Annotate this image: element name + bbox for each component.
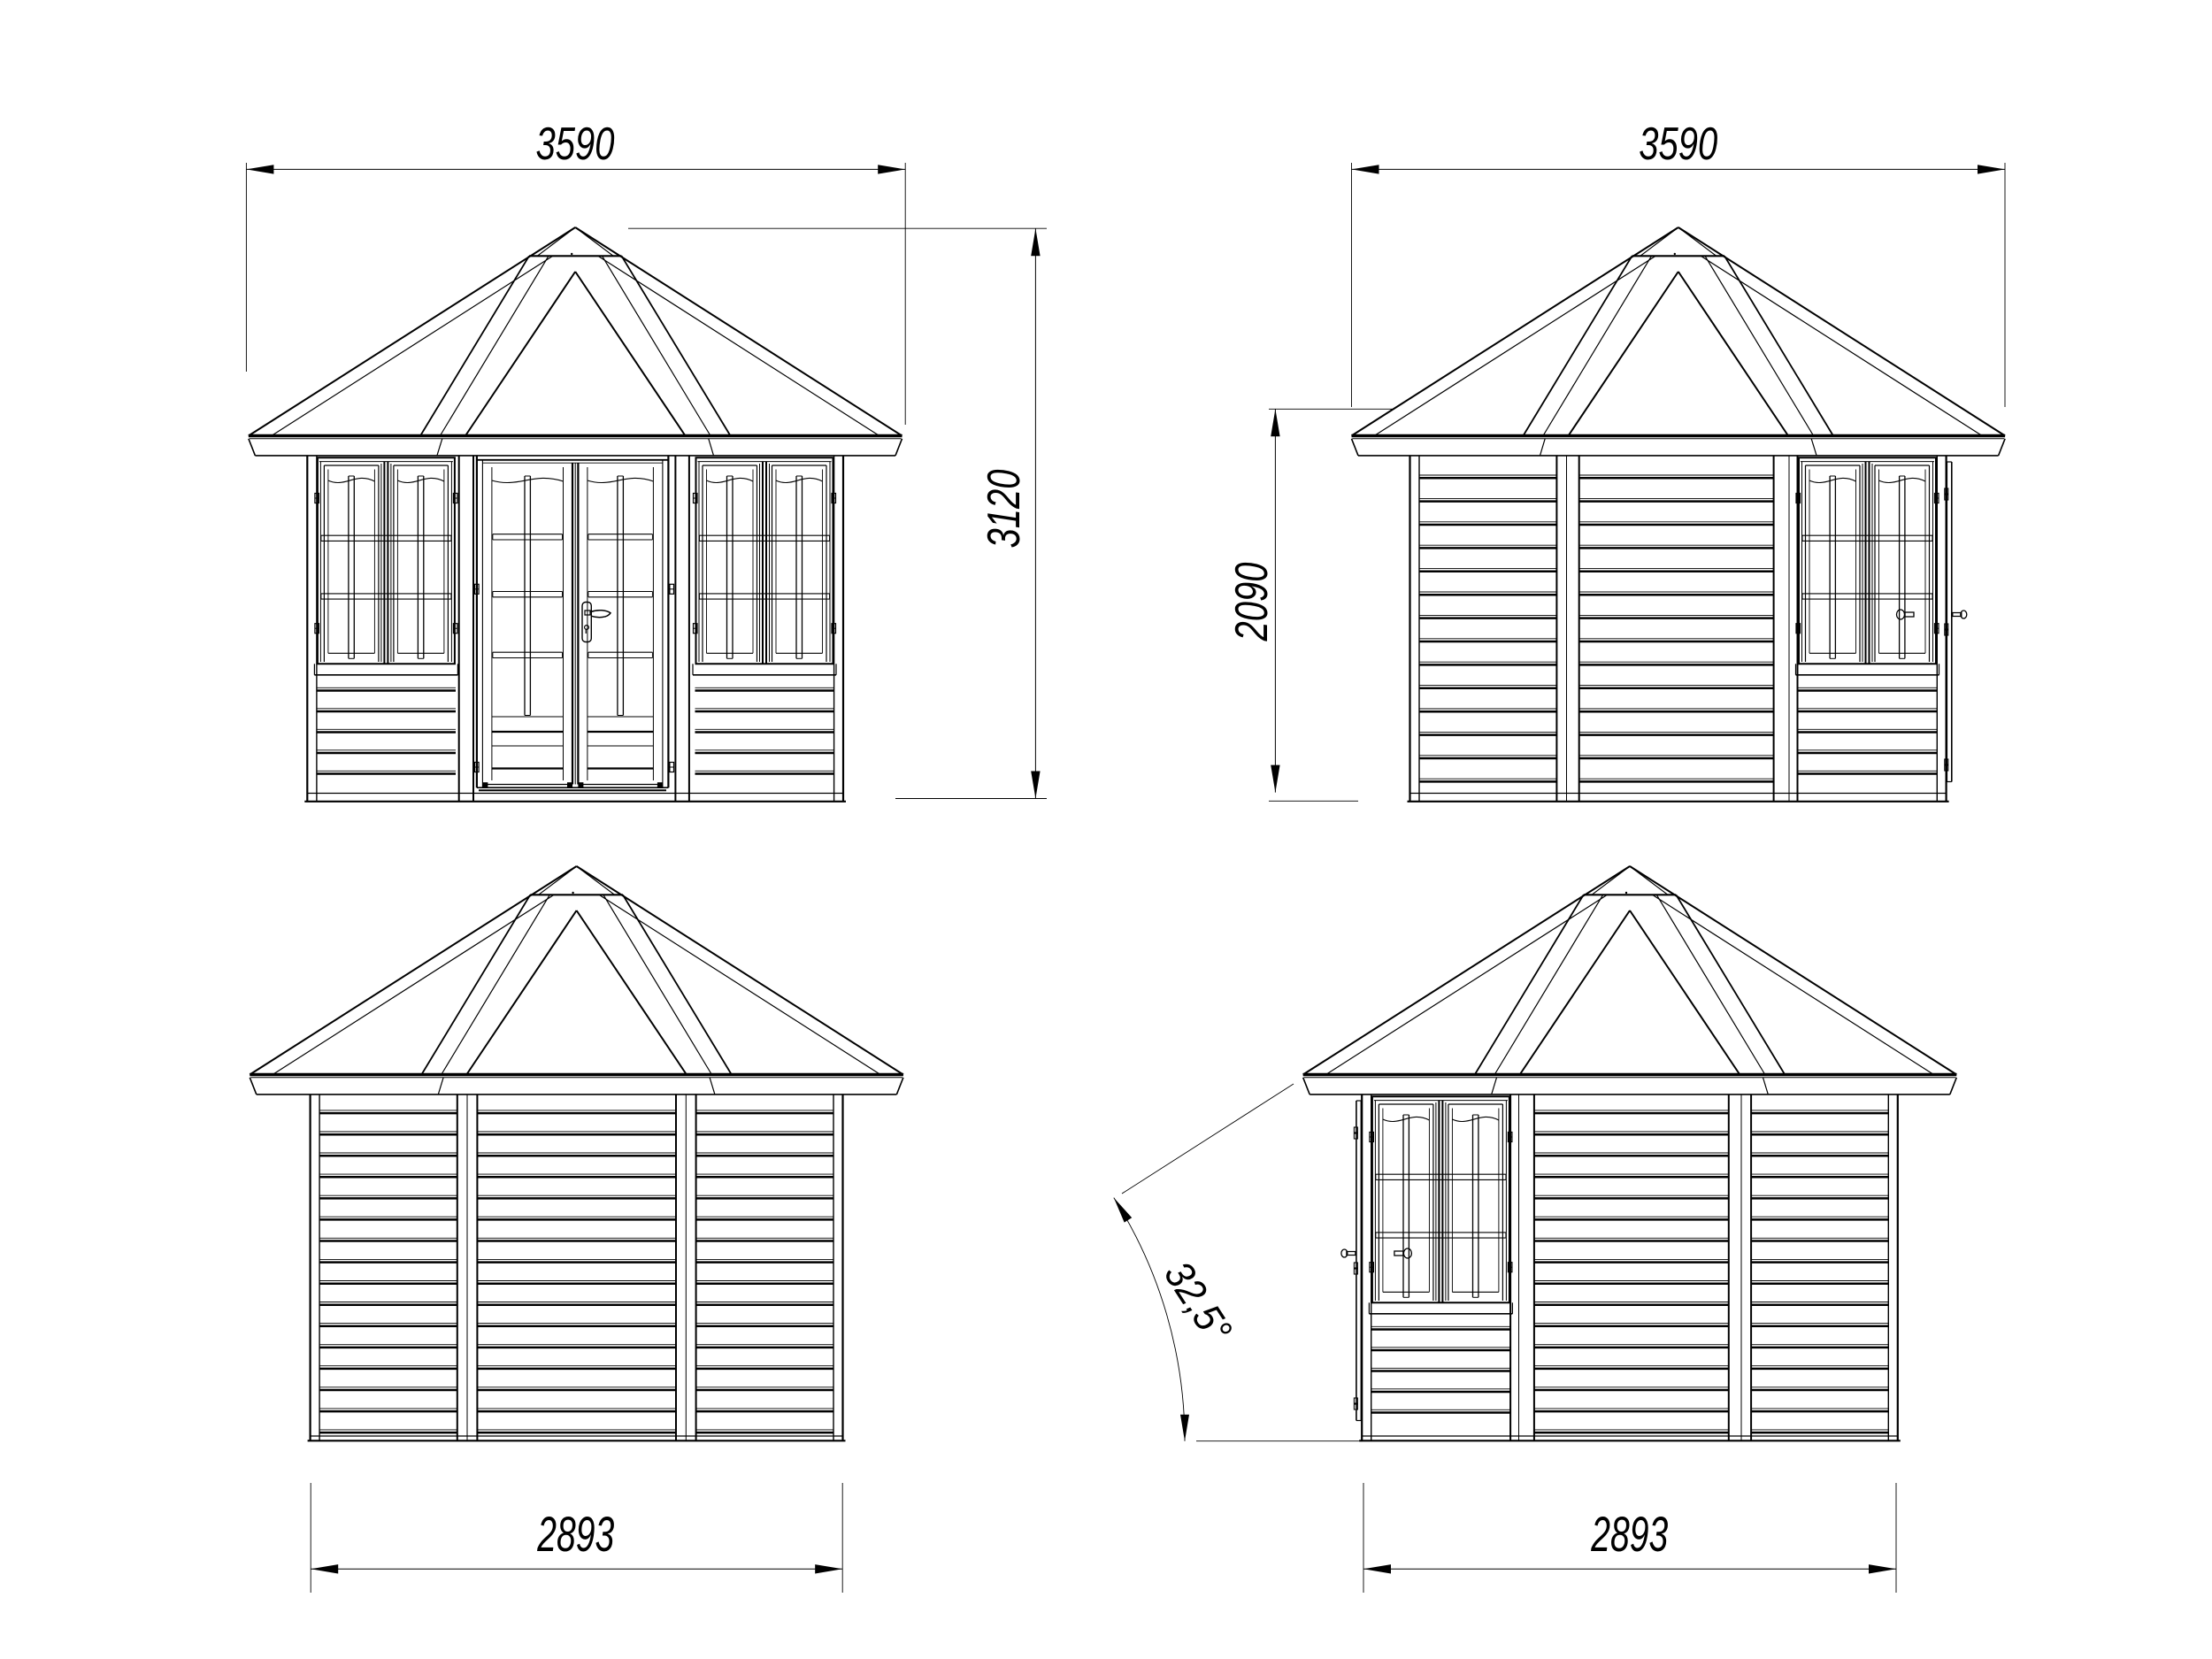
svg-text:2893: 2893 — [1591, 1506, 1669, 1562]
svg-text:3590: 3590 — [536, 119, 615, 170]
svg-text:3120: 3120 — [979, 469, 1030, 548]
svg-text:3590: 3590 — [1639, 119, 1717, 170]
svg-text:2090: 2090 — [1226, 562, 1278, 641]
svg-text:2893: 2893 — [537, 1506, 615, 1562]
